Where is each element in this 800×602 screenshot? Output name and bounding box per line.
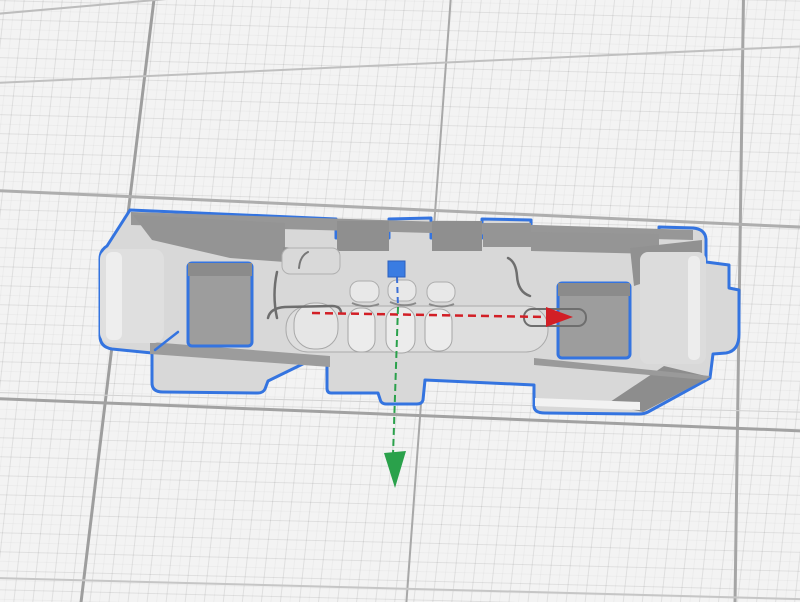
pocket-left-inner-shadow [188,263,252,276]
selected-model[interactable] [100,210,739,414]
pocket-right-inner-shadow [558,283,630,296]
scene-canvas [0,0,800,602]
model-left-endcap [100,249,164,343]
3d-viewport[interactable] [0,0,800,602]
model-right-endcap [640,252,706,364]
z-handle-square[interactable] [388,261,405,277]
